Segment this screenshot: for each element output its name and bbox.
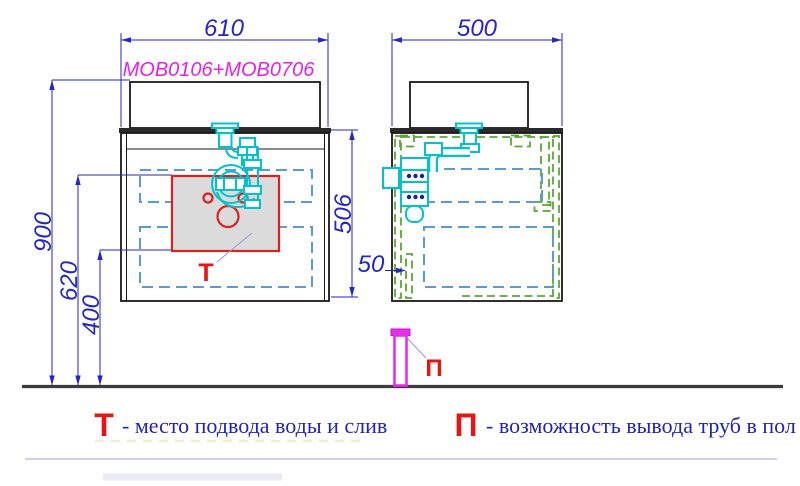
valve-dot [407, 195, 411, 199]
side-basin [410, 82, 528, 128]
pipe-end-cap [245, 200, 260, 208]
floor-pipe-marker: П [425, 355, 442, 382]
wall-outlet [383, 168, 399, 188]
legend-water-marker: Т [94, 407, 114, 443]
legend-pipe-text: - возможность вывода труб в пол [486, 413, 796, 438]
floor-pipe: П [391, 329, 443, 386]
leader-line [408, 339, 426, 358]
arrowhead [75, 376, 80, 386]
arrowhead [552, 37, 562, 42]
drain-tailpiece [219, 133, 232, 147]
arrowhead [318, 37, 328, 42]
vanity-installation-drawing: 610 MOB0106+MOB0706 Т [0, 0, 800, 486]
product-code-label: MOB0106+MOB0706 [123, 59, 316, 81]
valve-dot [420, 195, 424, 199]
pipe-nut [244, 186, 261, 194]
pipe-nut [244, 160, 261, 168]
elbow-coupling [425, 143, 442, 155]
trap-valve-bar [216, 178, 245, 190]
arrowhead [49, 376, 54, 386]
dim-width-label: 610 [204, 15, 245, 42]
dim-offset-label: 50 [358, 251, 385, 278]
dim-depth-label: 500 [457, 15, 498, 42]
valve-block [240, 138, 255, 147]
valve-dot [413, 195, 417, 199]
siphon-cup [406, 206, 423, 222]
arrowhead [97, 250, 102, 260]
front-basin [130, 82, 320, 128]
water-point-marker: Т [198, 259, 213, 287]
dim-height-506: 506 [330, 130, 358, 297]
valve-dot [407, 174, 411, 178]
dim-drain-top-label: 620 [56, 260, 83, 301]
side-view: 500 [358, 15, 563, 301]
arrowhead [392, 37, 402, 42]
valve-dot [420, 174, 424, 178]
technical-drawing-page: 610 MOB0106+MOB0706 Т [0, 0, 800, 486]
legend: Т - место подвода воды и слив П - возмож… [94, 407, 796, 443]
arrowhead [349, 287, 354, 297]
arrowhead [121, 37, 131, 42]
valve-dot [413, 174, 417, 178]
arrowhead [349, 130, 354, 140]
arrowhead [49, 80, 54, 90]
dim-cabinet-height-label: 506 [330, 193, 357, 234]
dim-total-height-label: 900 [30, 211, 57, 252]
legend-pipe-marker: П [455, 407, 478, 443]
legend-water-text: - место подвода воды и слив [122, 413, 387, 438]
pipe-body [395, 336, 407, 386]
height-dimensions: 900 620 400 [30, 80, 130, 386]
arrowhead [75, 175, 80, 185]
arrowhead [97, 376, 102, 386]
dim-drain-bottom-label: 400 [78, 294, 105, 335]
front-view: 610 MOB0106+MOB0706 Т [78, 15, 358, 301]
